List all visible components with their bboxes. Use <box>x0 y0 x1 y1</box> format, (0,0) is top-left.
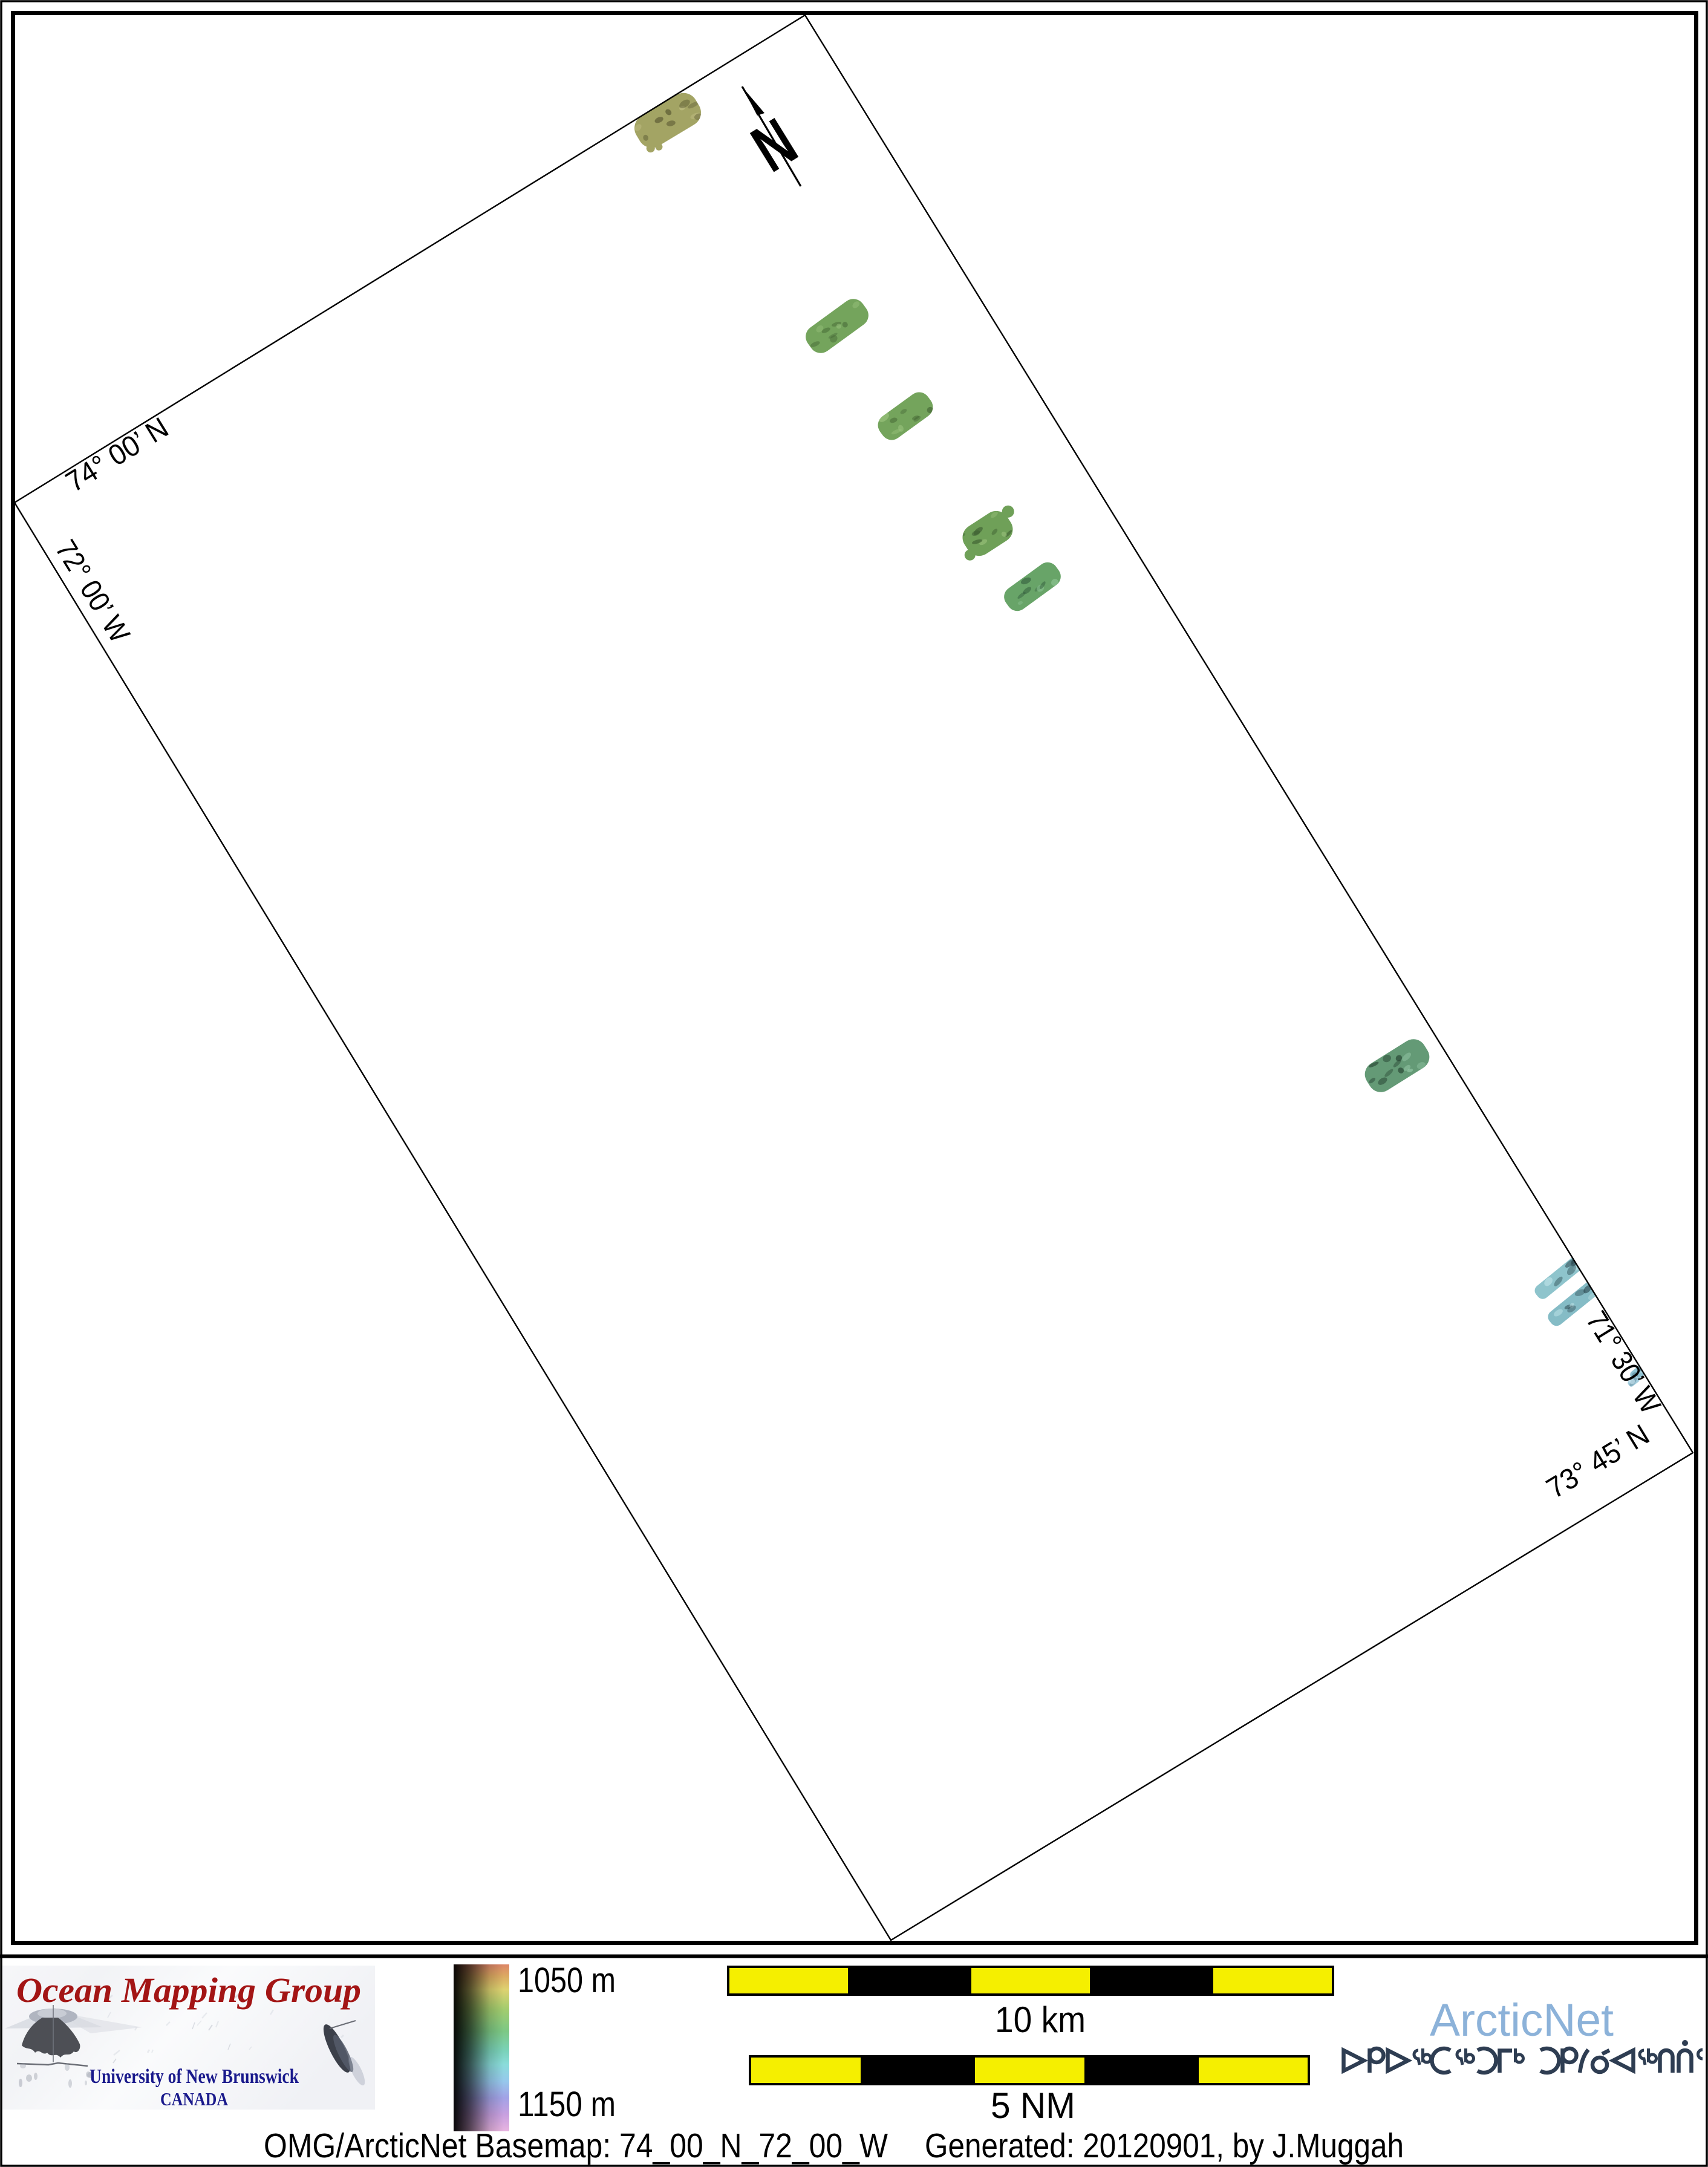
svg-text:OMG/ArcticNet Basemap: 74_00_N: OMG/ArcticNet Basemap: 74_00_N_72_00_W <box>264 2126 888 2165</box>
svg-text:Generated: 20120901, by J.Mugg: Generated: 20120901, by J.Muggah <box>925 2126 1404 2165</box>
svg-text:ArcticNet: ArcticNet <box>1430 1995 1614 2046</box>
svg-text:10 km: 10 km <box>995 1999 1086 2040</box>
svg-text:1150 m: 1150 m <box>518 2085 616 2124</box>
svg-text:5 NM: 5 NM <box>991 2085 1075 2126</box>
svg-text:Ocean Mapping Group: Ocean Mapping Group <box>16 1970 361 2010</box>
svg-text:University of New Brunswick: University of New Brunswick <box>90 2065 299 2088</box>
svg-text:1050 m: 1050 m <box>518 1961 616 2000</box>
svg-text:CANADA: CANADA <box>160 2088 229 2110</box>
